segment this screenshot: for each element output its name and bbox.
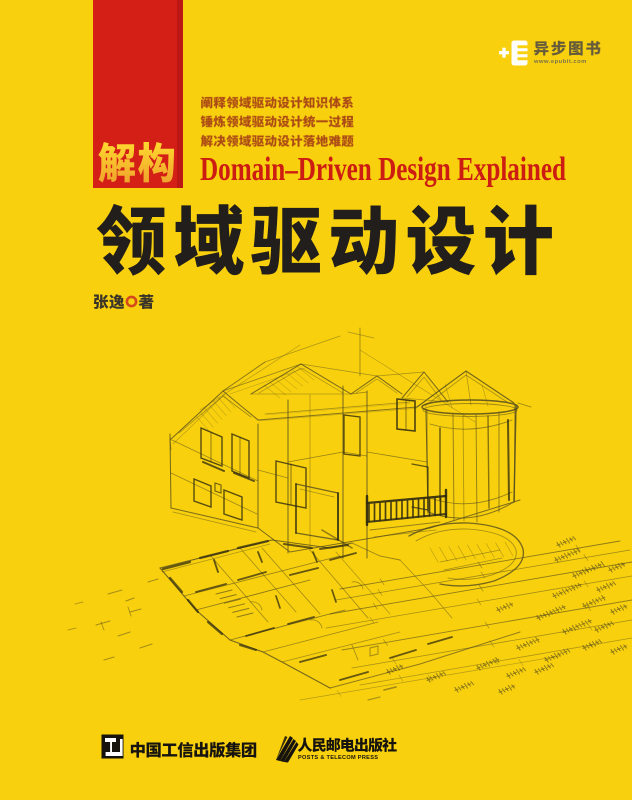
- svg-text:POSTS & TELECOM PRESS: POSTS & TELECOM PRESS: [298, 755, 378, 761]
- svg-text:Domain–Driven Design Explained: Domain–Driven Design Explained: [200, 151, 566, 188]
- svg-text:www.epubit.com: www.epubit.com: [533, 59, 587, 65]
